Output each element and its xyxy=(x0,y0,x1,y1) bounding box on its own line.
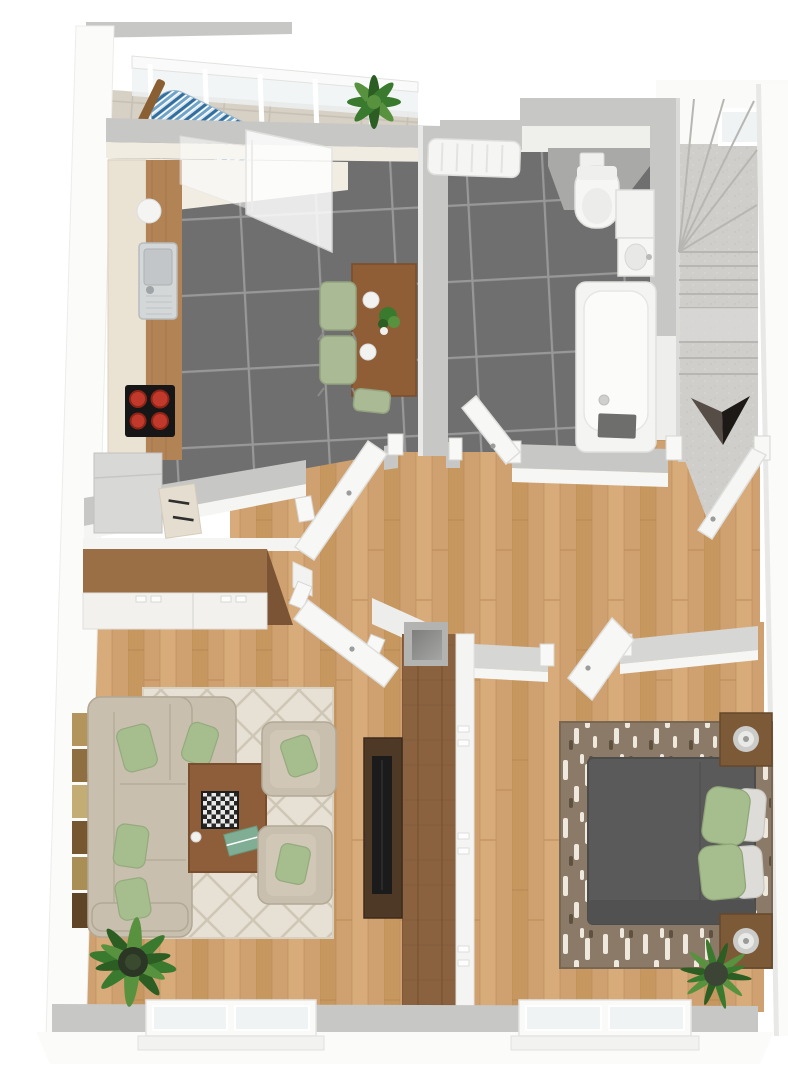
lamp xyxy=(743,938,749,944)
bath-mat xyxy=(598,413,637,438)
cooktop xyxy=(125,385,175,437)
decor-ball xyxy=(191,832,201,842)
door-jamb xyxy=(449,438,462,460)
stair-landing xyxy=(678,308,758,342)
dining-chair xyxy=(353,388,391,414)
coffee-table xyxy=(189,764,266,872)
cabinet-handles xyxy=(159,484,202,539)
nightstand xyxy=(720,713,772,766)
bedroom xyxy=(560,713,772,968)
balcony-plant xyxy=(347,75,401,129)
lamp xyxy=(743,736,749,742)
dining-chair xyxy=(320,282,356,330)
towel-roll xyxy=(137,199,161,223)
basin-faucet xyxy=(646,254,652,260)
door-jamb xyxy=(540,644,554,666)
door-handle xyxy=(585,665,590,670)
bathtub xyxy=(576,282,656,452)
floor-plan-canvas xyxy=(0,0,788,1080)
door-handle xyxy=(710,516,715,521)
armchair xyxy=(262,722,336,796)
living-room-window xyxy=(138,1000,324,1050)
duct-shaft-opening xyxy=(412,630,442,660)
kitchen-bathroom-wall-face xyxy=(418,126,423,456)
wardrobe xyxy=(83,549,293,629)
door-handle xyxy=(349,646,354,651)
door-jamb xyxy=(666,436,682,460)
door-jamb xyxy=(388,434,403,455)
appliance-fridge xyxy=(94,453,162,533)
washbasin xyxy=(616,190,654,276)
faucet xyxy=(146,286,154,294)
top-wall-cap xyxy=(86,22,292,38)
door-jamb xyxy=(295,496,315,522)
plate xyxy=(363,292,379,308)
partition-wardrobe-front xyxy=(456,634,474,1014)
chessboard xyxy=(202,792,238,828)
door-handle xyxy=(490,443,495,448)
plate xyxy=(360,344,376,360)
floor-plan-root xyxy=(0,0,788,1080)
bedroom-top-wall-left xyxy=(474,644,548,672)
flush-plate xyxy=(580,153,604,167)
radiator xyxy=(427,138,520,177)
wardrobe-top xyxy=(83,549,267,593)
door-handle xyxy=(346,490,351,495)
vase xyxy=(380,327,388,335)
drain xyxy=(599,395,609,405)
nightstand xyxy=(720,914,772,968)
bedroom-window xyxy=(511,1000,699,1050)
tv-unit xyxy=(364,738,402,918)
window-sill xyxy=(511,1036,699,1050)
window-sill xyxy=(138,1036,324,1050)
plant-pot xyxy=(704,962,728,986)
stairwell-wall-edge xyxy=(676,98,680,440)
armchair xyxy=(258,826,332,904)
double-bed xyxy=(588,758,767,924)
sink xyxy=(139,243,177,319)
partition-wardrobe-top xyxy=(402,634,456,1014)
dining-chair xyxy=(320,336,356,384)
